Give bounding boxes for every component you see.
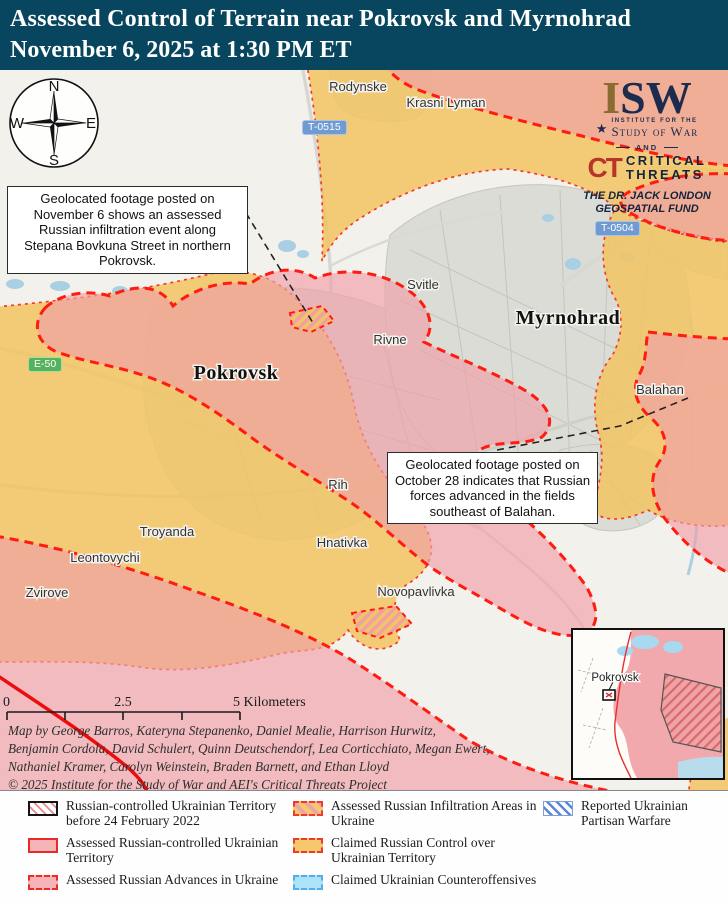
credits-line2: Benjamin Cordola, David Schulert, Quinn … [8, 740, 490, 758]
swatch-russian-controlled [28, 838, 58, 853]
legend-item-counteroffensives: Claimed Ukrainian Counteroffensives [293, 872, 543, 890]
scale-start: 0 [3, 695, 10, 710]
compass-e: E [86, 115, 96, 132]
swatch-counteroffensives [293, 875, 323, 890]
label-krasni-lyman: Krasni Lyman [407, 95, 486, 110]
swatch-claimed-control [293, 838, 323, 853]
road-shield-t0515: T-0515 [302, 120, 347, 135]
map-legend: Russian-controlled Ukrainian Territory b… [0, 790, 728, 905]
legend-item-claimed-control: Claimed Russian Control over Ukrainian T… [293, 835, 543, 865]
label-pokrovsk: Pokrovsk [194, 362, 279, 384]
label-rih: Rih [328, 477, 348, 492]
label-novopavlivka: Novopavlivka [377, 584, 455, 599]
isw-map-page: Assessed Control of Terrain near Pokrovs… [0, 0, 728, 905]
credits-line3: Nathaniel Kramer, Carolyn Weinstein, Bra… [8, 758, 490, 776]
compass-w: W [10, 115, 25, 132]
isw-logo: ISW [572, 74, 722, 122]
isw-study-of-war: Study of War [611, 124, 698, 140]
callout-october-advance: Geolocated footage posted on October 28 … [387, 452, 598, 524]
label-svitle: Svitle [407, 277, 439, 292]
inset-pokrovsk-label: Pokrovsk [591, 672, 639, 684]
isw-star-icon: ★ [596, 121, 608, 137]
label-myrnohrad: Myrnohrad [516, 307, 621, 329]
scale-mid: 2.5 [114, 695, 132, 710]
road-shield-t0504: T-0504 [595, 221, 640, 236]
road-shield-e50: E-50 [28, 357, 62, 372]
swatch-partisan [543, 801, 573, 816]
label-troyanda: Troyanda [140, 524, 195, 539]
scale-end: 5 Kilometers [233, 695, 306, 710]
inset-locator-map: Pokrovsk [571, 628, 725, 780]
ct-line2: THREATS [626, 168, 707, 182]
ct-mark: CT [588, 155, 621, 181]
page-title: Assessed Control of Terrain near Pokrovs… [10, 6, 631, 33]
map-credits: Map by George Barros, Kateryna Stepanenk… [8, 722, 490, 794]
swatch-pre2022 [28, 801, 58, 816]
legend-item-partisan: Reported Ukrainian Partisan Warfare [543, 798, 723, 828]
label-balahan: Balahan [636, 382, 684, 397]
map-canvas: Rodynske Krasni Lyman Svitle Rivne Myrno… [0, 70, 728, 790]
label-rivne: Rivne [373, 332, 406, 347]
logo-block: ISW ★ INSTITUTE FOR THE Study of War AND… [572, 74, 722, 216]
critical-threats-logo: CT CRITICAL THREATS [572, 154, 722, 182]
ct-line1: CRITICAL [626, 154, 707, 168]
geospatial-fund-credit: THE DR. JACK LONDON GEOSPATIAL FUND [572, 190, 722, 216]
and-label: AND [636, 143, 658, 152]
legend-item-infiltration: Assessed Russian Infiltration Areas in U… [293, 798, 543, 828]
label-leontovychi: Leontovychi [70, 550, 139, 565]
header: Assessed Control of Terrain near Pokrovs… [0, 0, 728, 70]
credits-line1: Map by George Barros, Kateryna Stepanenk… [8, 722, 490, 740]
legend-item-pre2022: Russian-controlled Ukrainian Territory b… [28, 798, 283, 828]
compass-n: N [49, 78, 60, 95]
label-rodynske: Rodynske [329, 79, 387, 94]
swatch-infiltration [293, 801, 323, 816]
compass-rose: N S W E [8, 77, 100, 169]
swatch-russian-advances [28, 875, 58, 890]
legend-item-russian-controlled: Assessed Russian-controlled Ukrainian Te… [28, 835, 283, 865]
callout-november-infiltration: Geolocated footage posted on November 6 … [7, 186, 248, 274]
label-zvirove: Zvirove [26, 585, 69, 600]
legend-item-russian-advances: Assessed Russian Advances in Ukraine [28, 872, 283, 890]
compass-s: S [49, 152, 59, 169]
label-hnativka: Hnativka [317, 535, 368, 550]
page-subtitle-date: November 6, 2025 at 1:30 PM ET [10, 37, 352, 64]
